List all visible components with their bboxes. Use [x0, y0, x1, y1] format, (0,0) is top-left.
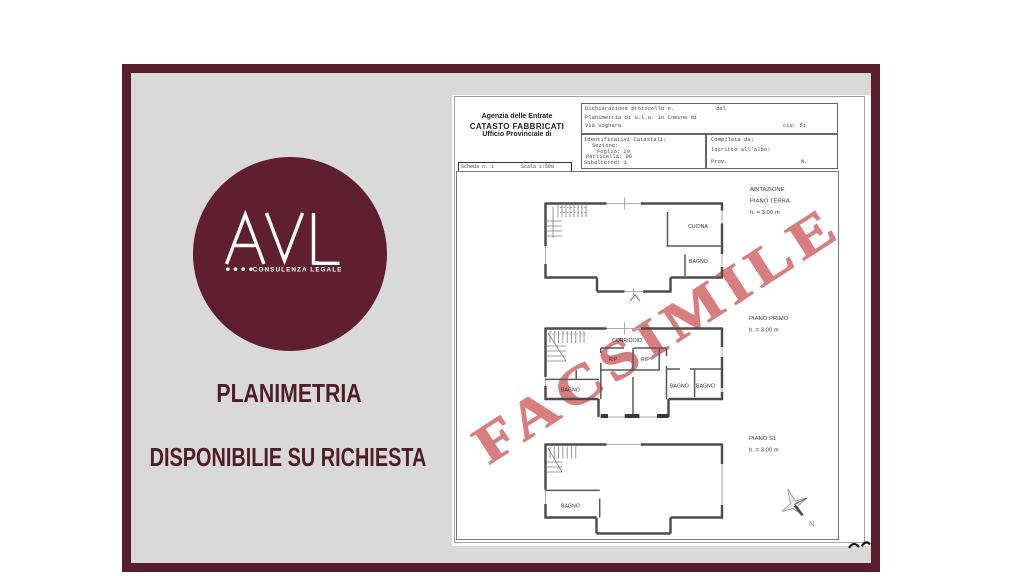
- svg-text:ABITAZIONE: ABITAZIONE: [750, 187, 785, 193]
- svg-text:BAGNO: BAGNO: [561, 504, 580, 510]
- svg-text:PIANO S1: PIANO S1: [749, 436, 776, 442]
- svg-text:h. = 3.00 m: h. = 3.00 m: [749, 328, 779, 334]
- svg-text:RIP: RIP: [641, 357, 650, 363]
- svg-text:BAGNO: BAGNO: [670, 384, 689, 390]
- svg-text:RIP: RIP: [609, 357, 618, 363]
- svg-text:BAGNO: BAGNO: [561, 388, 580, 394]
- svg-text:h. = 3.00 m: h. = 3.00 m: [750, 210, 780, 216]
- svg-text:N: N: [809, 519, 814, 528]
- svg-text:CORRIDOIO: CORRIDOIO: [612, 338, 642, 344]
- svg-text:PIANO PRIMO: PIANO PRIMO: [749, 316, 789, 322]
- svg-text:CUCINA: CUCINA: [688, 224, 708, 230]
- svg-text:BAGNO: BAGNO: [696, 384, 715, 390]
- svg-text:PIANO TERRA: PIANO TERRA: [750, 199, 790, 205]
- svg-text:h. = 3.00 m: h. = 3.00 m: [749, 448, 779, 454]
- svg-text:BAGNO: BAGNO: [689, 259, 708, 265]
